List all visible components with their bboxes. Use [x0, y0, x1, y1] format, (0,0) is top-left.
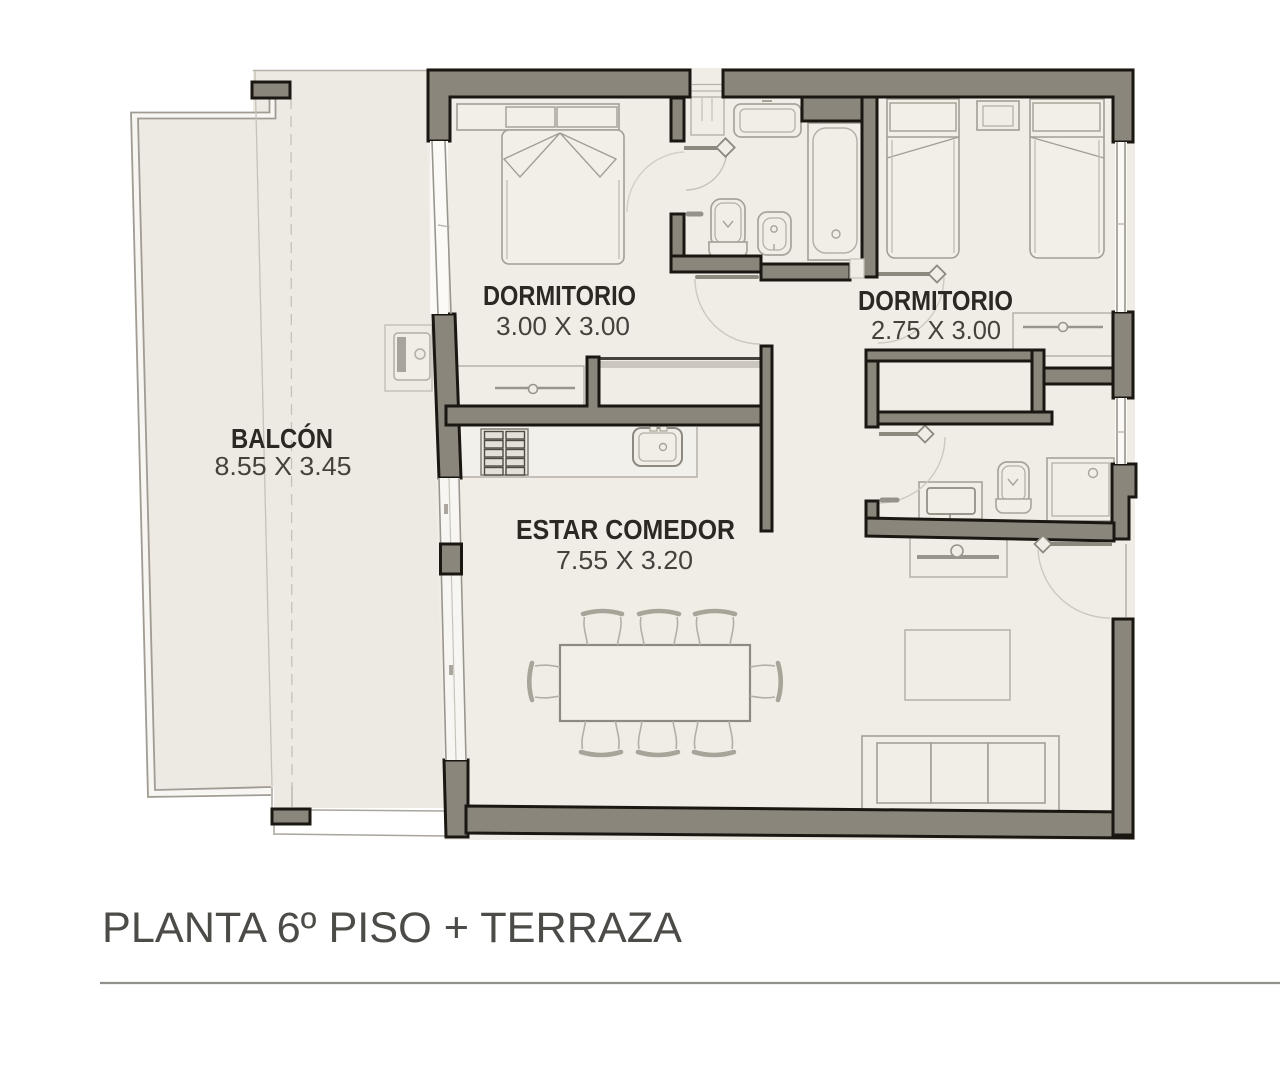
svg-text:8.55 X 3.45: 8.55 X 3.45: [215, 451, 352, 481]
svg-text:7.55 X 3.20: 7.55 X 3.20: [556, 545, 693, 575]
svg-text:BALCÓN: BALCÓN: [231, 423, 333, 454]
svg-text:2.75 X 3.00: 2.75 X 3.00: [871, 315, 1001, 345]
svg-text:DORMITORIO: DORMITORIO: [483, 280, 636, 311]
svg-text:3.00 X 3.00: 3.00 X 3.00: [496, 311, 630, 341]
svg-text:DORMITORIO: DORMITORIO: [858, 285, 1013, 316]
svg-text:ESTAR COMEDOR: ESTAR COMEDOR: [516, 514, 735, 545]
svg-text:PLANTA 6º PISO + TERRAZA: PLANTA 6º PISO + TERRAZA: [102, 904, 682, 952]
